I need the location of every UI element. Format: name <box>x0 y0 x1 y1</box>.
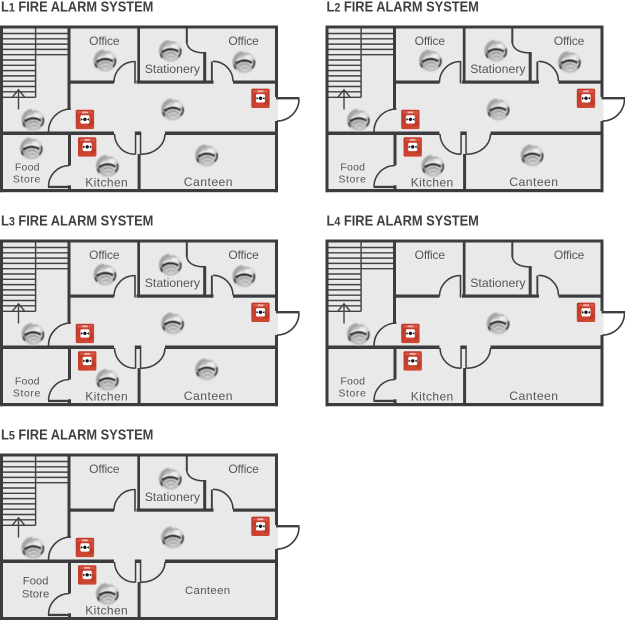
svg-text:L1 FIRE ALARM SYSTEM: L1 FIRE ALARM SYSTEM <box>1 0 153 15</box>
svg-text:Store: Store <box>22 589 50 601</box>
svg-text:Food: Food <box>23 576 49 588</box>
svg-text:L5 FIRE ALARM SYSTEM: L5 FIRE ALARM SYSTEM <box>1 427 153 443</box>
svg-text:L2 FIRE ALARM SYSTEM: L2 FIRE ALARM SYSTEM <box>327 0 479 15</box>
svg-text:Canteen: Canteen <box>185 585 231 597</box>
svg-text:L3 FIRE ALARM SYSTEM: L3 FIRE ALARM SYSTEM <box>1 213 153 229</box>
svg-text:L4 FIRE ALARM SYSTEM: L4 FIRE ALARM SYSTEM <box>327 213 479 229</box>
